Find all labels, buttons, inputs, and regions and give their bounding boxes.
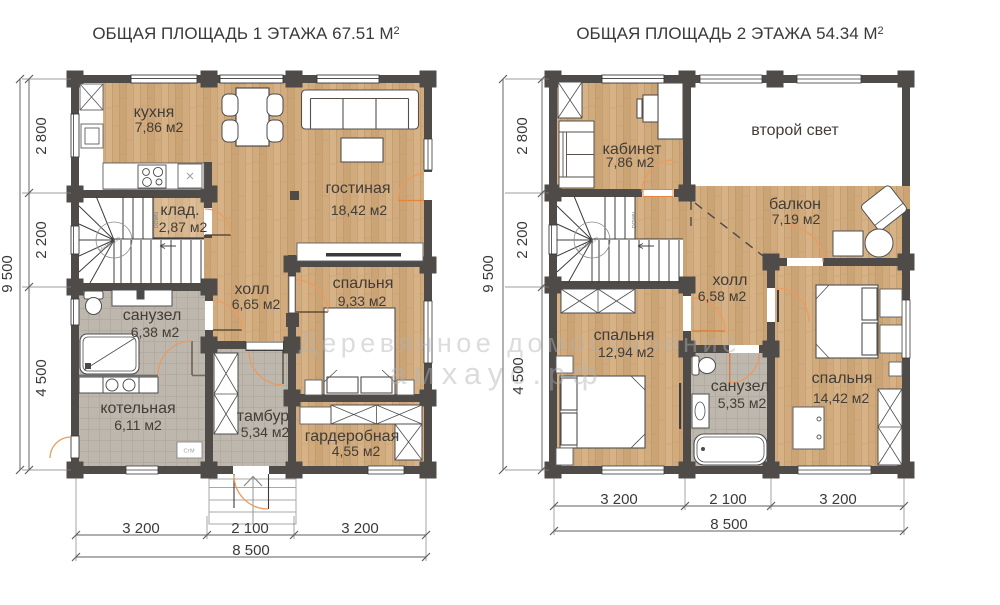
svg-text:4 500: 4 500 <box>510 357 527 395</box>
svg-text:второй свет: второй свет <box>751 122 839 139</box>
svg-text:спальня: спальня <box>333 275 394 292</box>
svg-text:3 200: 3 200 <box>122 520 160 537</box>
svg-text:спальня: спальня <box>812 370 873 387</box>
svg-text:2,87 м2: 2,87 м2 <box>159 219 208 235</box>
svg-text:2 200: 2 200 <box>33 221 50 259</box>
svg-text:2 800: 2 800 <box>33 117 50 155</box>
svg-text:2 800: 2 800 <box>514 117 531 155</box>
svg-text:7,19 м2: 7,19 м2 <box>772 211 821 227</box>
svg-text:ОБЩАЯ ПЛОЩАДЬ 1 ЭТАЖА 67.51 М2: ОБЩАЯ ПЛОЩАДЬ 1 ЭТАЖА 67.51 М2 <box>92 24 399 43</box>
svg-text:9,33 м2: 9,33 м2 <box>338 293 387 309</box>
svg-text:18,42 м2: 18,42 м2 <box>331 202 388 218</box>
svg-text:3 200: 3 200 <box>819 491 857 508</box>
svg-text:тамбур: тамбур <box>237 408 290 425</box>
svg-text:8 500: 8 500 <box>710 516 748 533</box>
svg-text:спальня: спальня <box>594 327 655 344</box>
svg-text:холл: холл <box>712 272 747 289</box>
svg-text:гостиная: гостиная <box>325 180 390 197</box>
svg-text:12,94 м2: 12,94 м2 <box>598 344 655 360</box>
svg-text:14,42 м2: 14,42 м2 <box>813 390 870 406</box>
svg-text:санузел: санузел <box>711 378 770 395</box>
svg-text:3 200: 3 200 <box>600 491 638 508</box>
svg-text:5,34 м2: 5,34 м2 <box>241 424 290 440</box>
svg-text:4,55 м2: 4,55 м2 <box>332 443 381 459</box>
svg-text:7,86 м2: 7,86 м2 <box>135 119 184 135</box>
svg-text:котельная: котельная <box>100 400 175 417</box>
svg-text:6,58 м2: 6,58 м2 <box>698 288 747 304</box>
svg-text:6,11 м2: 6,11 м2 <box>114 417 162 433</box>
svg-text:Деревянное домостроение: Деревянное домостроение <box>298 328 741 358</box>
svg-text:клад.: клад. <box>160 202 199 219</box>
svg-text:5,35 м2: 5,35 м2 <box>718 395 767 411</box>
svg-text:6,38 м2: 6,38 м2 <box>131 324 180 340</box>
svg-text:2 200: 2 200 <box>514 221 531 259</box>
svg-text:6,65 м2: 6,65 м2 <box>232 296 281 312</box>
svg-text:ОБЩАЯ ПЛОЩАДЬ 2 ЭТАЖА 54.34 М2: ОБЩАЯ ПЛОЩАДЬ 2 ЭТАЖА 54.34 М2 <box>576 24 883 43</box>
svg-text:9 500: 9 500 <box>480 255 497 293</box>
svg-text:7,86 м2: 7,86 м2 <box>606 154 655 170</box>
svg-text:4 500: 4 500 <box>33 359 50 397</box>
svg-text:2 100: 2 100 <box>709 491 747 508</box>
svg-text:3 200: 3 200 <box>341 520 379 537</box>
svg-text:СтМ: СтМ <box>183 449 194 455</box>
svg-text:санузел: санузел <box>123 307 182 324</box>
svg-text:9 500: 9 500 <box>0 255 16 293</box>
svg-text:8 500: 8 500 <box>232 542 270 559</box>
svg-text:DOWN: DOWN <box>632 212 638 228</box>
svg-text:2 100: 2 100 <box>231 520 269 537</box>
svg-text:амхаус.рф: амхаус.рф <box>389 356 605 391</box>
